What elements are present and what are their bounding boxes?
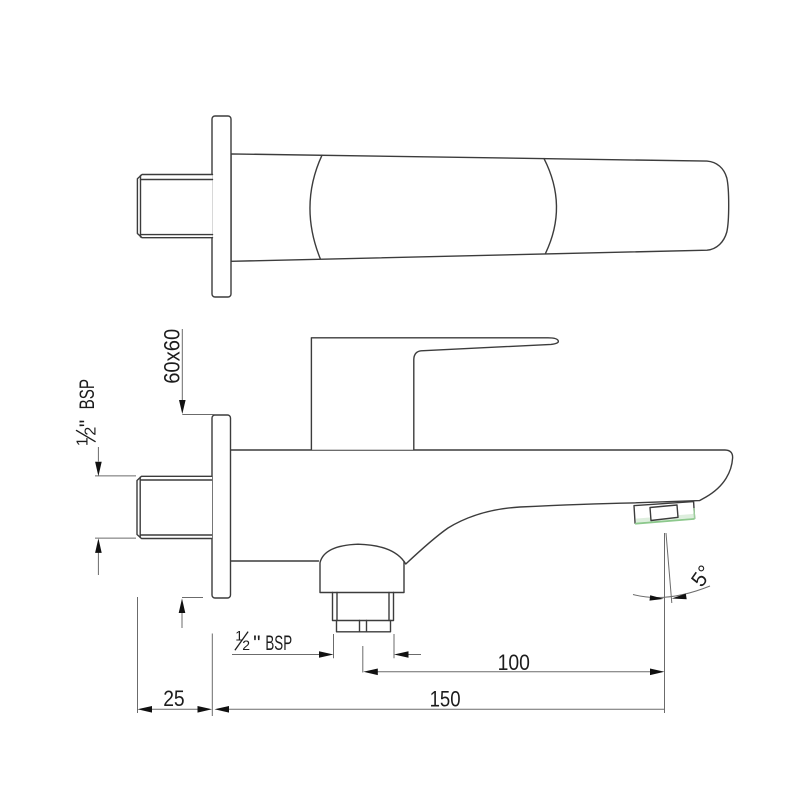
- svg-text:5°: 5°: [687, 561, 717, 591]
- svg-text:": ": [76, 420, 99, 427]
- svg-text:2: 2: [242, 637, 250, 653]
- svg-text:BSP: BSP: [76, 379, 99, 409]
- svg-text:60x60: 60x60: [159, 329, 184, 384]
- svg-text:25: 25: [163, 686, 185, 711]
- svg-text:BSP: BSP: [265, 632, 292, 655]
- svg-text:100: 100: [498, 650, 530, 675]
- svg-text:": ": [253, 632, 260, 655]
- svg-text:150: 150: [430, 686, 461, 711]
